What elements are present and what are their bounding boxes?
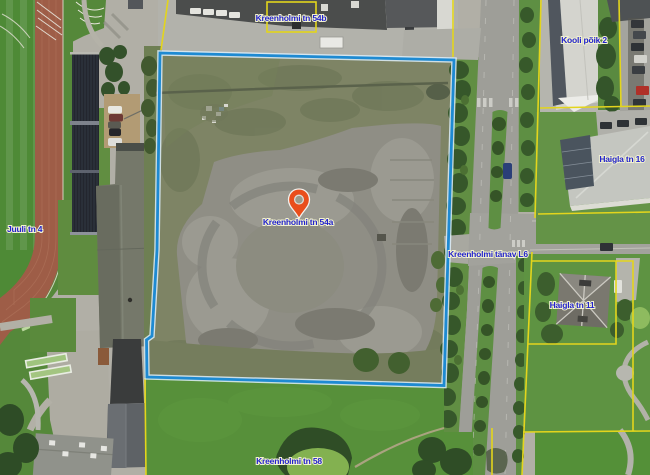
- svg-text:Kreenholmi tänav L6: Kreenholmi tänav L6: [448, 249, 528, 259]
- svg-text:Kreenholmi tn 58: Kreenholmi tn 58: [256, 456, 322, 466]
- svg-text:Kooli põik 2: Kooli põik 2: [561, 35, 607, 45]
- svg-text:Kreenholmi tn 54b: Kreenholmi tn 54b: [256, 13, 327, 23]
- svg-text:Haigla tn 11: Haigla tn 11: [550, 300, 595, 310]
- svg-text:Juuli tn 4: Juuli tn 4: [7, 224, 43, 234]
- svg-text:Haigla tn 16: Haigla tn 16: [599, 154, 645, 164]
- svg-text:Kreenholmi tn 54a: Kreenholmi tn 54a: [263, 217, 334, 227]
